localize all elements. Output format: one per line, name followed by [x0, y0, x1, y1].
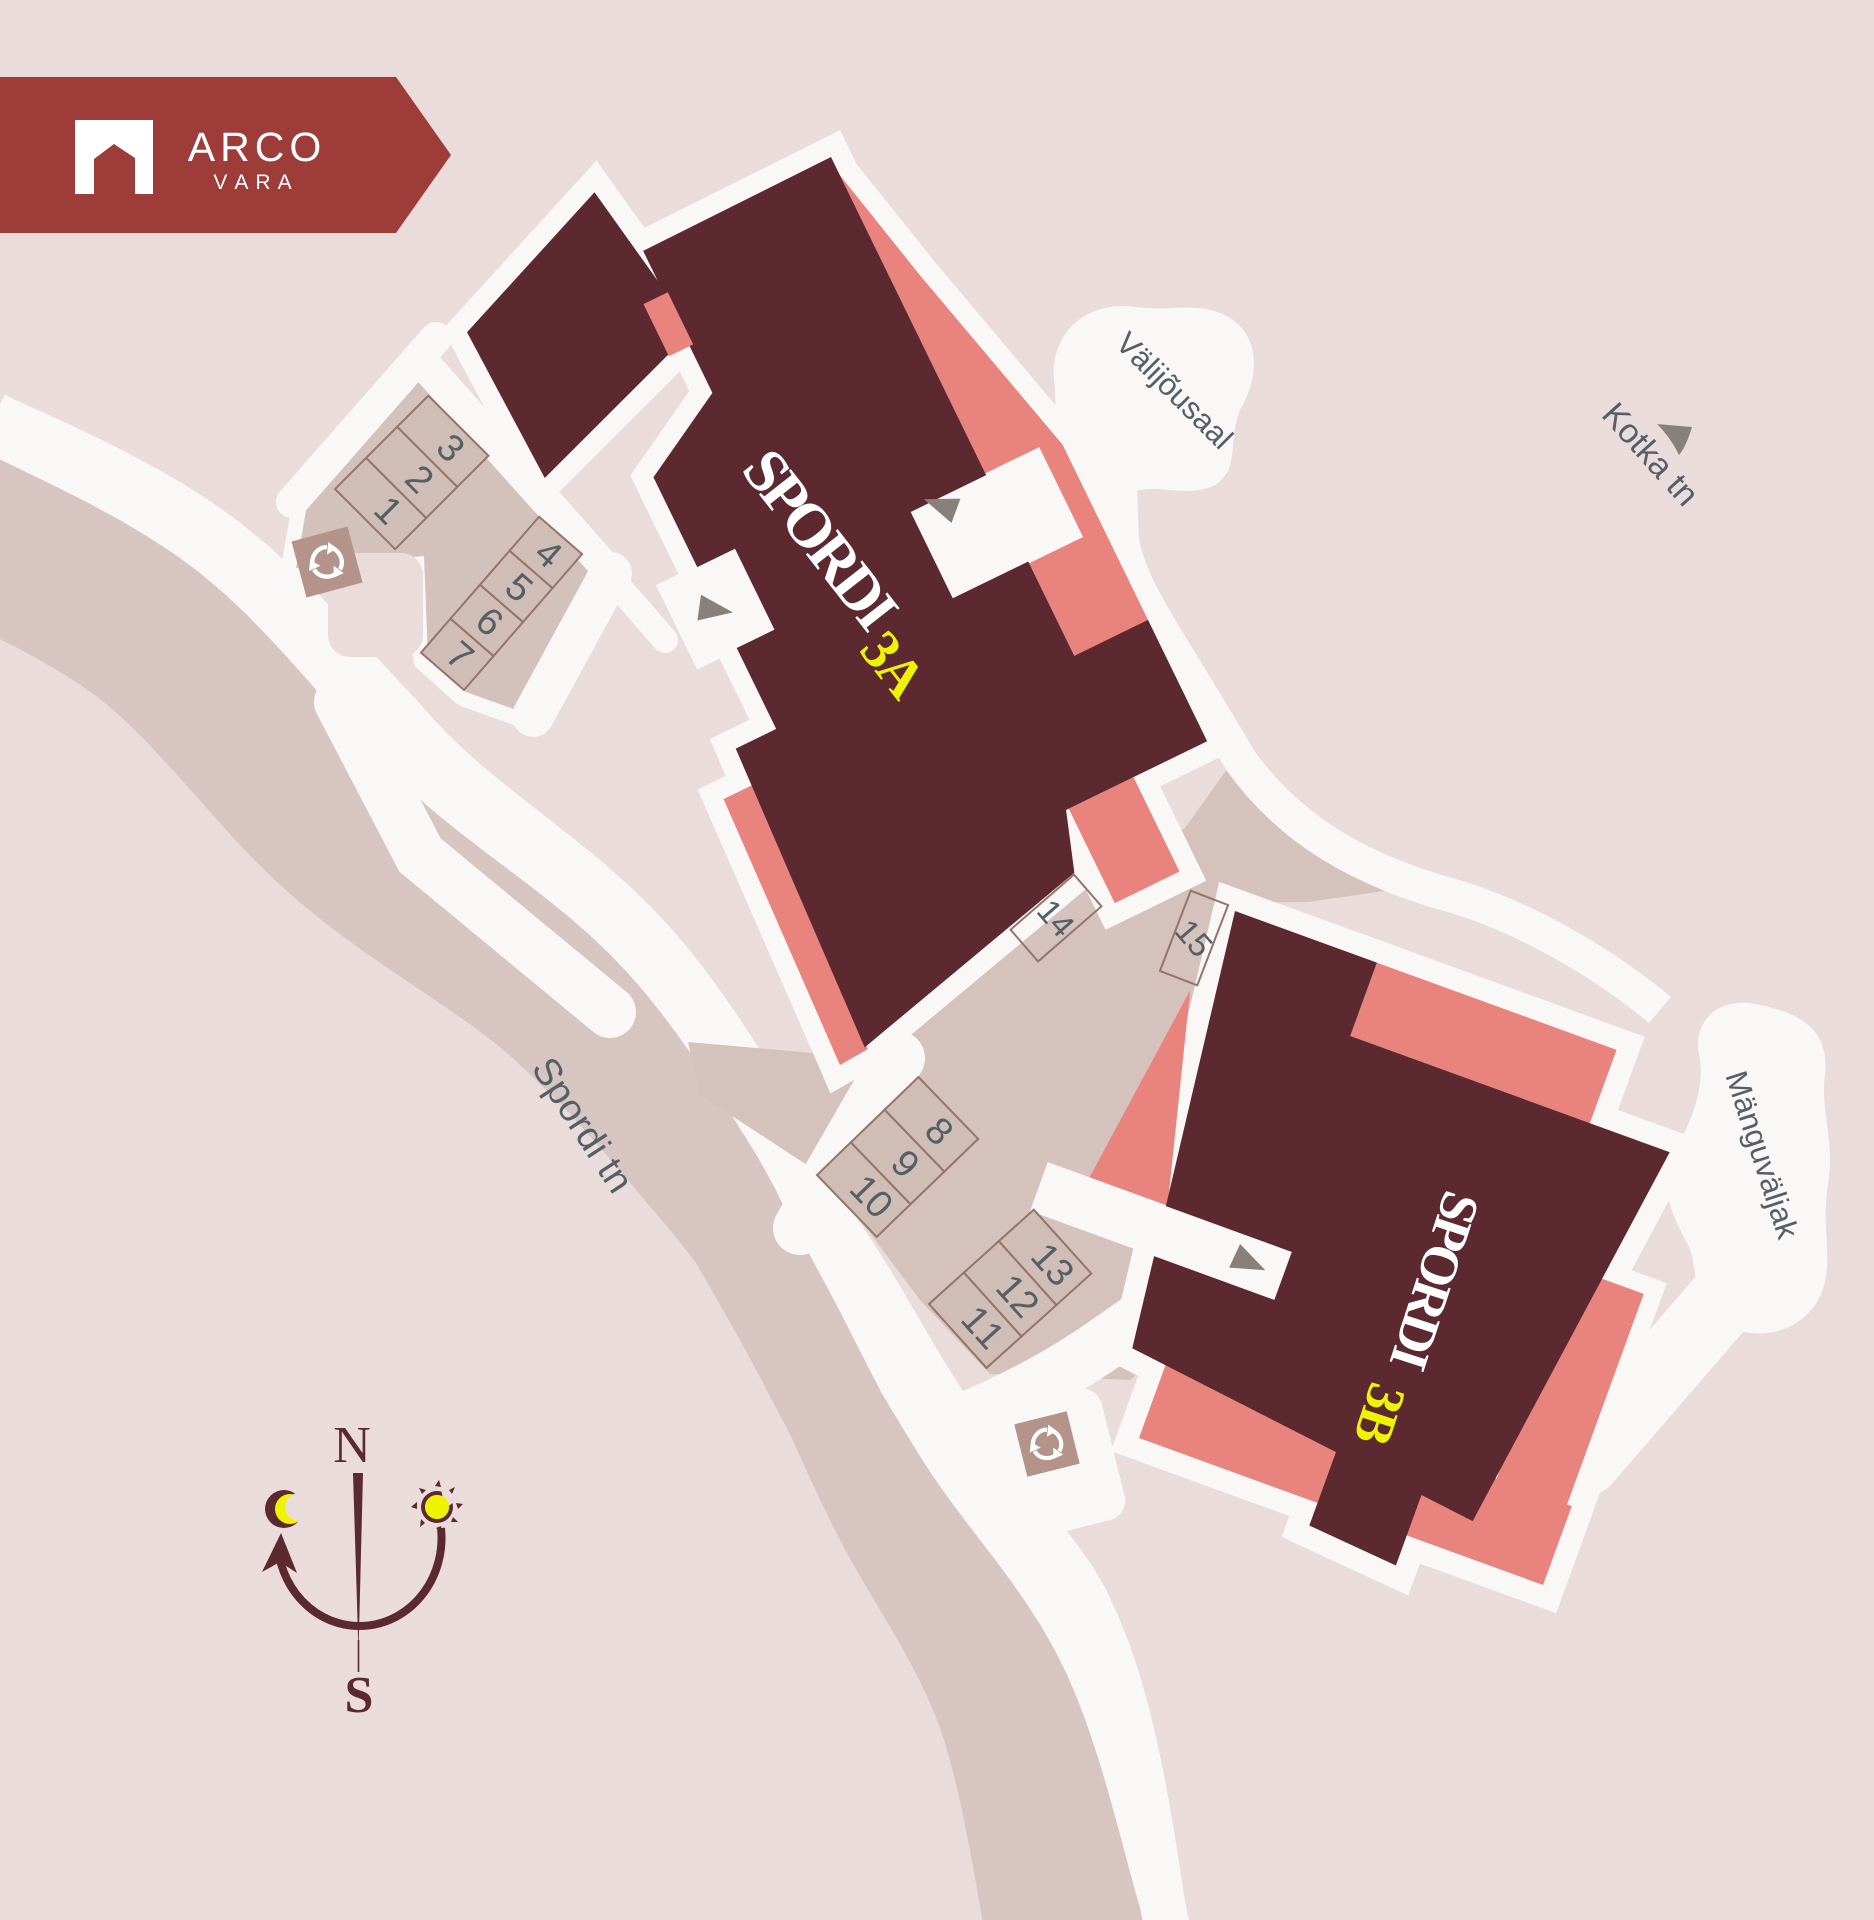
svg-text:N: N	[333, 1417, 371, 1474]
svg-text:S: S	[345, 1667, 374, 1724]
svg-text:VARA: VARA	[213, 171, 298, 194]
svg-text:ARCO: ARCO	[188, 124, 326, 170]
